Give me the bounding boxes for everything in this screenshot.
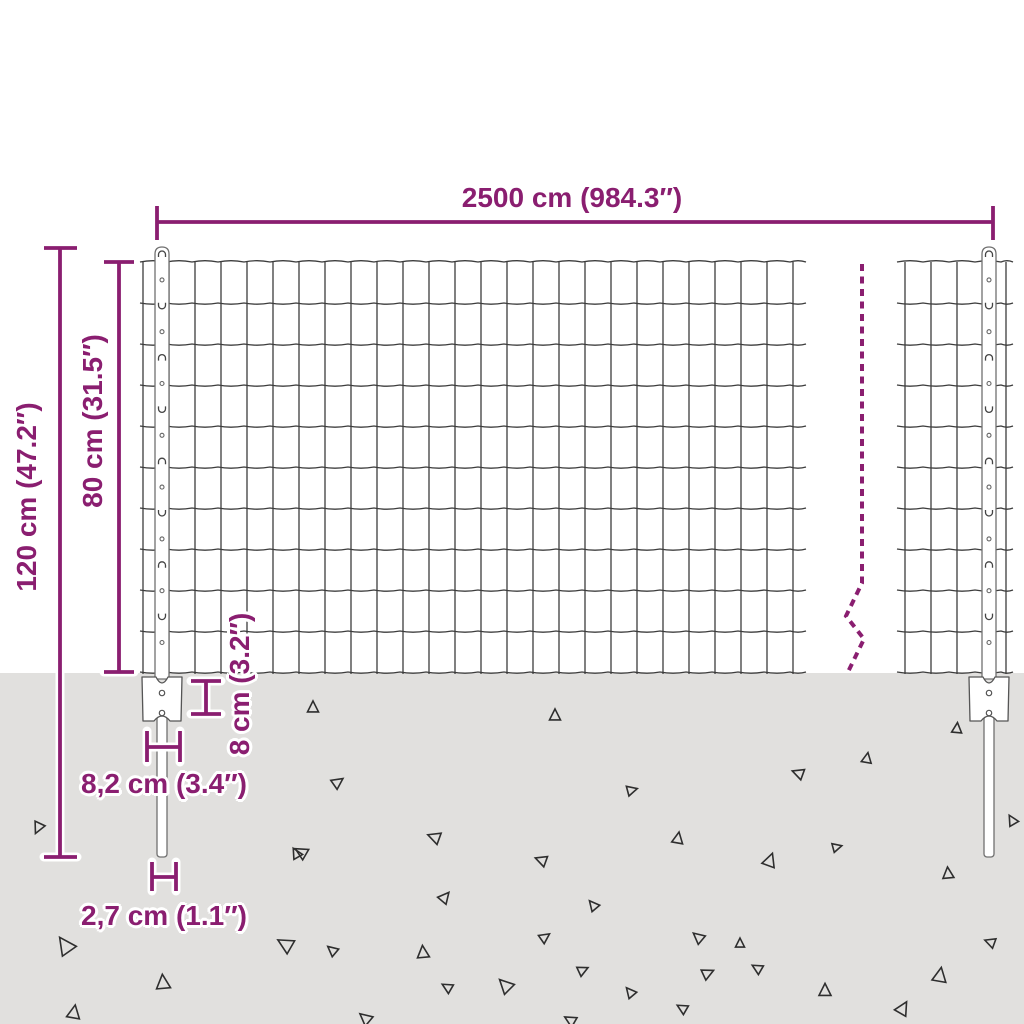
- fence-figure: [0, 0, 1024, 1024]
- break-line: [846, 264, 864, 674]
- dimension-label-post-width: 2,7 cm (1.1″): [81, 900, 247, 932]
- dimension-label-plate-width: 8,2 cm (3.4″): [81, 768, 247, 800]
- dimension-label-total-width: 2500 cm (984.3″): [462, 182, 682, 214]
- ground: [0, 673, 1024, 1024]
- dimension-label-post-height: 120 cm (47.2″): [11, 402, 43, 591]
- dimension-label-fence-height: 80 cm (31.5″): [77, 334, 109, 508]
- fence-diagram: 2500 cm (984.3″) 120 cm (47.2″) 80 cm (3…: [0, 0, 1024, 1024]
- dimension-label-plate-depth: 8 cm (3.2″): [224, 613, 256, 756]
